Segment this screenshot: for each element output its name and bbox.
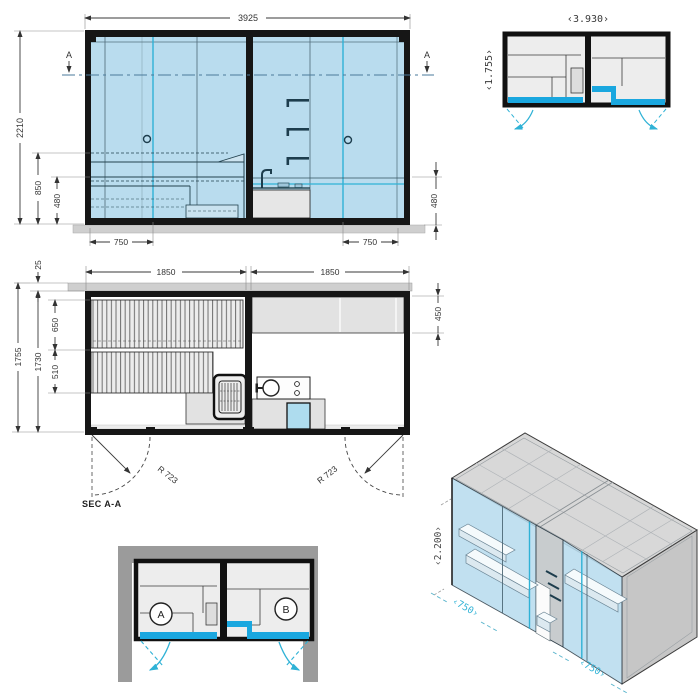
section-marker-a-right: A (424, 50, 430, 60)
center-mullion (246, 33, 253, 222)
dim-bench-height-left: 480 (52, 194, 62, 208)
tap-knob[interactable] (295, 382, 300, 387)
shower-tray-plan (287, 403, 310, 429)
dim-door-left: 750 (114, 237, 128, 247)
dim-wall: 25 (33, 260, 43, 270)
section-plan-view: R 723 R 723 SEC A-A 1850 1850 25 1755 (12, 260, 444, 509)
iso-doorway (536, 581, 550, 641)
cad-drawing: A A 3925 2210 850 480 (0, 0, 700, 700)
counter-plan (252, 297, 404, 333)
door-radius-right: R 723 (315, 464, 339, 486)
elevation-view: A A 3925 2210 850 480 (14, 13, 442, 247)
door-radius-left: R 723 (156, 464, 180, 486)
mini-bottom-door-arrows (141, 641, 308, 670)
dim-bench-height-right: 480 (429, 194, 439, 208)
mini-top-door-arrows (507, 109, 666, 129)
dim-depth-total: 1755 (13, 347, 23, 366)
floor-plinth (73, 225, 425, 233)
section-label: SEC A-A (82, 499, 122, 509)
counter-item (295, 184, 302, 188)
dim-bench-upper: 650 (50, 318, 60, 332)
isometric-view: ‹2.200› ‹750› ‹750› (431, 433, 697, 694)
mini-top-dim-width: ‹3.930› (567, 14, 609, 25)
dim-door-right: 750 (363, 237, 377, 247)
dim-room-right: 1850 (321, 267, 340, 277)
door-swing-left[interactable]: R 723 (92, 435, 180, 500)
basin (263, 380, 279, 396)
dim-width: 3925 (238, 13, 258, 23)
iso-dim-left: ‹750› (450, 596, 480, 620)
mini-top-partition (585, 34, 591, 105)
dim-counter-depth: 450 (433, 307, 443, 321)
sauna-bench-lower-plan (91, 352, 213, 393)
room-b-label: B (282, 604, 289, 616)
plan-mini-bottom-view: A B (118, 546, 318, 682)
dim-bench-lower: 510 (50, 365, 60, 379)
back-wall-band (68, 283, 412, 291)
dim-depth-inner: 1730 (33, 352, 43, 371)
dim-total-height: 2210 (15, 118, 25, 138)
dim-counter-height: 850 (33, 181, 43, 195)
partition-wall (245, 297, 252, 429)
vanity-cabinet (252, 190, 310, 218)
drawing-sheet: A A 3925 2210 850 480 (0, 0, 700, 700)
plan-mini-top-view: ‹3.930› ‹1.755› (484, 14, 668, 129)
sink-plan (256, 377, 311, 399)
section-marker-a-left: A (66, 50, 72, 60)
room-a-label: A (157, 609, 164, 621)
mini-top-dim-depth: ‹1.755› (484, 49, 495, 91)
dim-room-left: 1850 (157, 267, 176, 277)
alcove-wall-left (118, 546, 132, 682)
iso-dim-height: ‹2.200› (433, 526, 444, 566)
tap-knob[interactable] (295, 391, 300, 396)
sauna-heater (214, 375, 246, 419)
mini-bottom-partition (220, 561, 227, 639)
sink-basin (278, 183, 289, 187)
sauna-step (186, 205, 238, 218)
door-swing-right[interactable]: R 723 (315, 435, 403, 500)
